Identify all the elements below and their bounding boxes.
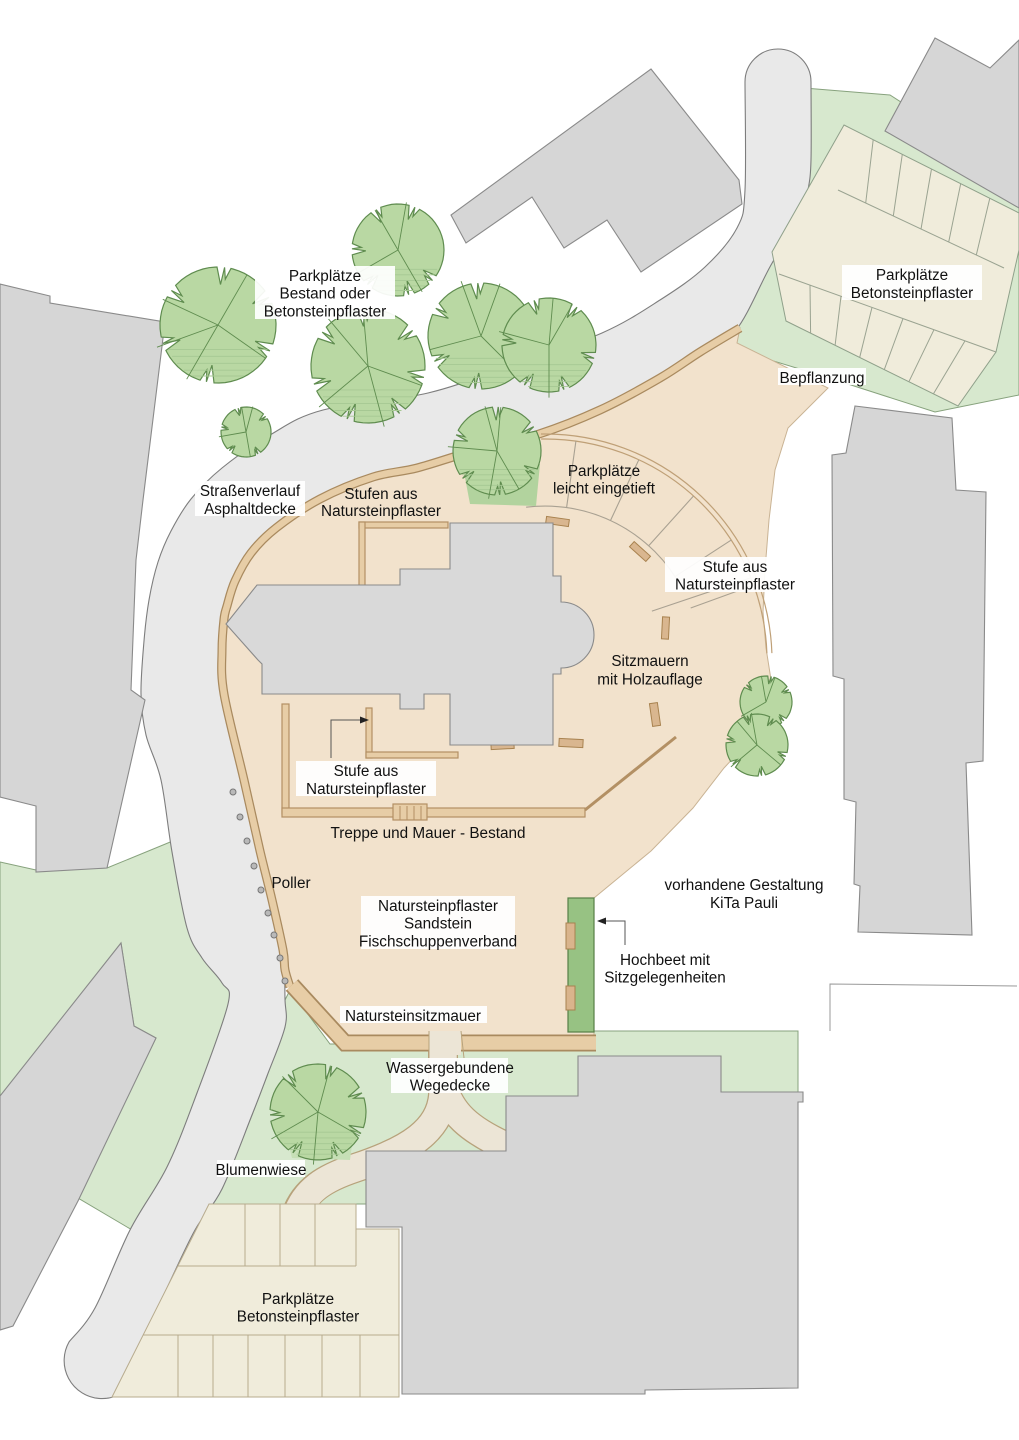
svg-text:Parkplätze: Parkplätze — [289, 268, 361, 285]
svg-text:Stufen aus: Stufen aus — [344, 486, 417, 503]
svg-text:Natursteinpflaster: Natursteinpflaster — [306, 781, 426, 798]
svg-text:Bepflanzung: Bepflanzung — [779, 370, 864, 387]
svg-text:vorhandene Gestaltung: vorhandene Gestaltung — [664, 877, 823, 894]
svg-text:Stufe aus: Stufe aus — [334, 763, 399, 780]
svg-text:Parkplätze: Parkplätze — [568, 463, 640, 480]
svg-text:Sitzgelegenheiten: Sitzgelegenheiten — [604, 970, 726, 987]
svg-text:mit Holzauflage: mit Holzauflage — [597, 672, 702, 689]
svg-text:Treppe und Mauer - Bestand: Treppe und Mauer - Bestand — [330, 825, 525, 842]
svg-text:Betonsteinpflaster: Betonsteinpflaster — [851, 285, 973, 302]
svg-text:Straßenverlauf: Straßenverlauf — [200, 483, 301, 500]
svg-text:Betonsteinpflaster: Betonsteinpflaster — [264, 303, 386, 320]
svg-text:Parkplätze: Parkplätze — [876, 267, 948, 284]
svg-text:Natursteinpflaster: Natursteinpflaster — [321, 503, 441, 520]
svg-text:Sitzmauern: Sitzmauern — [611, 653, 688, 670]
svg-text:Natursteinpflaster: Natursteinpflaster — [675, 577, 795, 594]
svg-text:leicht eingetieft: leicht eingetieft — [553, 481, 656, 498]
svg-text:Betonsteinpflaster: Betonsteinpflaster — [237, 1309, 359, 1326]
svg-text:Wassergebundene: Wassergebundene — [386, 1060, 514, 1077]
svg-text:Hochbeet mit: Hochbeet mit — [620, 952, 711, 969]
svg-text:Fischschuppenverband: Fischschuppenverband — [359, 933, 517, 950]
svg-text:Blumenwiese: Blumenwiese — [216, 1162, 307, 1179]
svg-text:Natursteinsitzmauer: Natursteinsitzmauer — [345, 1008, 481, 1025]
svg-text:Asphaltdecke: Asphaltdecke — [204, 501, 296, 518]
svg-text:Wegedecke: Wegedecke — [410, 1078, 491, 1095]
svg-text:KiTa Pauli: KiTa Pauli — [710, 895, 778, 912]
svg-text:Bestand oder: Bestand oder — [280, 286, 371, 303]
svg-text:Sandstein: Sandstein — [404, 916, 472, 933]
svg-text:Stufe aus: Stufe aus — [703, 559, 768, 576]
svg-text:Poller: Poller — [271, 875, 310, 892]
svg-text:Natursteinpflaster: Natursteinpflaster — [378, 898, 498, 915]
svg-text:Parkplätze: Parkplätze — [262, 1291, 334, 1308]
